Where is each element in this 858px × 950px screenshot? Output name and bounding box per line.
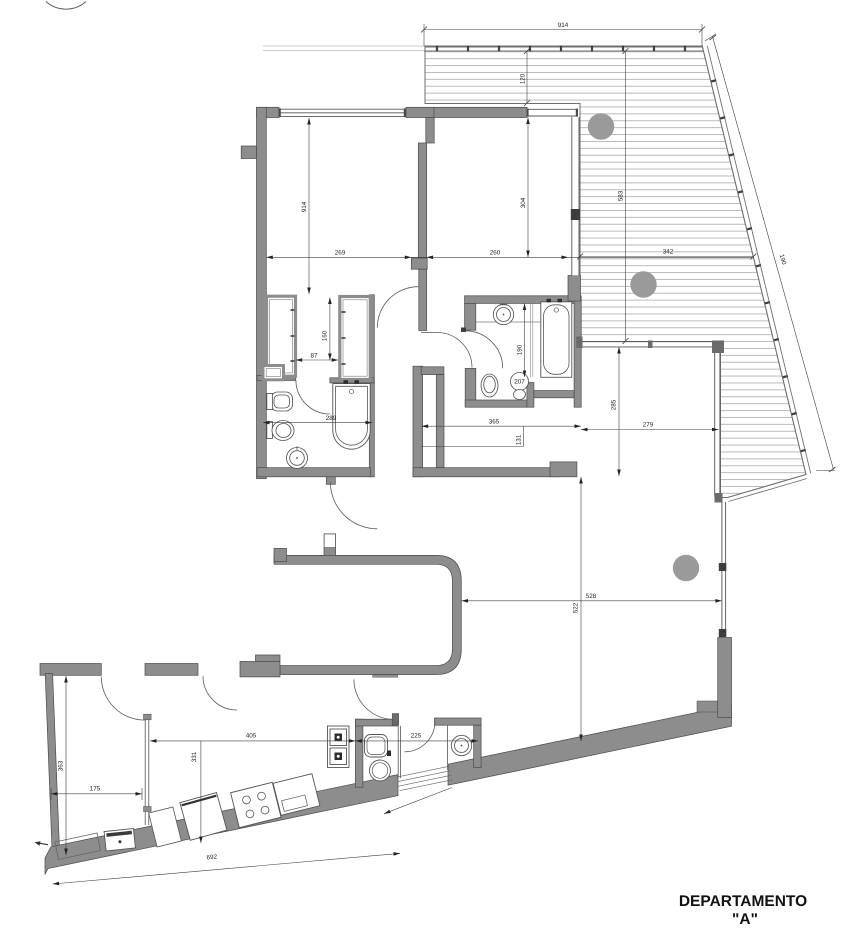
svg-text:914: 914 [558,22,569,29]
svg-text:160: 160 [322,330,329,341]
svg-text:87: 87 [310,353,318,360]
svg-text:363: 363 [58,760,65,771]
svg-text:289: 289 [326,415,337,422]
svg-text:528: 528 [586,593,597,600]
svg-text:DEPARTAMENTO: DEPARTAMENTO [679,893,807,910]
svg-text:225: 225 [411,733,422,740]
svg-text:914: 914 [301,201,308,212]
svg-text:583: 583 [618,190,625,201]
svg-text:522: 522 [573,602,580,613]
svg-text:"A": "A" [732,911,758,928]
svg-text:190: 190 [517,344,524,355]
svg-text:279: 279 [643,422,654,429]
svg-text:365: 365 [489,419,500,426]
svg-text:269: 269 [335,250,346,257]
svg-text:304: 304 [520,197,527,208]
svg-text:342: 342 [663,249,674,256]
svg-text:331: 331 [191,751,198,762]
svg-text:692: 692 [206,854,218,862]
svg-text:285: 285 [611,399,618,410]
svg-text:175: 175 [90,786,101,793]
svg-text:207: 207 [514,379,525,386]
svg-text:120: 120 [520,73,527,84]
svg-text:405: 405 [246,733,257,740]
svg-text:131: 131 [516,434,523,445]
svg-text:260: 260 [490,250,501,257]
